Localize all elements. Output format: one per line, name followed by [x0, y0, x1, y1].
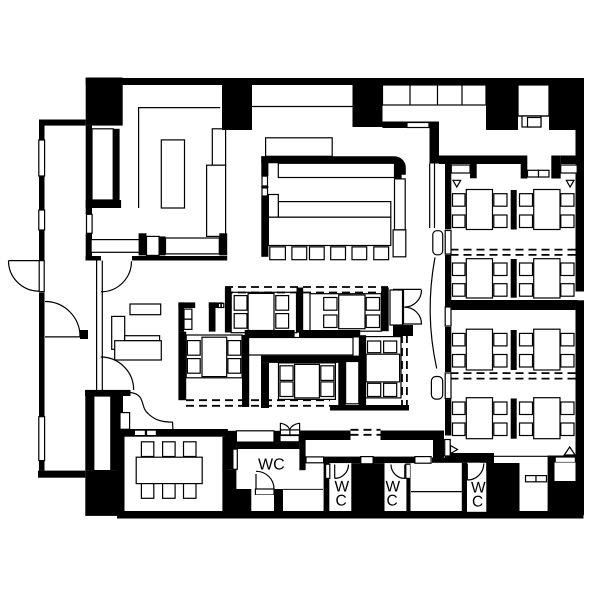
svg-text:WC: WC: [258, 457, 285, 474]
svg-text:C: C: [336, 493, 347, 510]
svg-text:C: C: [472, 494, 483, 511]
svg-text:C: C: [387, 493, 398, 510]
